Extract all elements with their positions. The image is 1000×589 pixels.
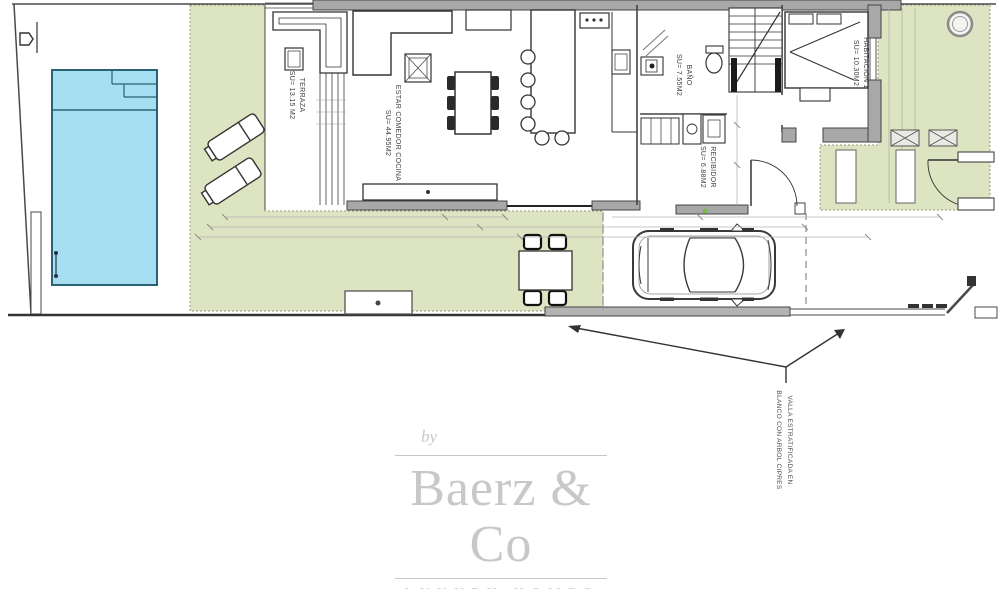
swimming-pool: [52, 70, 157, 285]
living-room-furniture: [353, 10, 511, 200]
fence-annotation-text: VALLA ESTRATIFICADA EN BLANCO CON ARBOL …: [773, 390, 795, 489]
brand-rule-middle: [395, 578, 607, 579]
kitchen: [521, 10, 637, 145]
front-door: [751, 160, 797, 206]
brand-watermark: by Baerz & Co LUXURY HOMES: [395, 427, 607, 589]
room-label-terraza: TERRAZA SU= 13.15 M2: [286, 71, 306, 120]
room-label-estar-comedor-cocina: ESTAR COMEDOR COCINA SU= 44.95M2: [382, 85, 402, 182]
fence-annotation-arrows: [568, 325, 845, 383]
brand-prefix: by: [395, 427, 607, 447]
laundry-closet: [641, 114, 725, 144]
terrace-planter: [273, 12, 347, 73]
car: [633, 224, 775, 306]
brand-rule-top: [395, 455, 607, 456]
room-label-habitacion-1: HABITACIÓN 1 SU= 10.30M2: [850, 37, 870, 89]
water-tap-icon: [20, 22, 37, 53]
room-label-recibidor: RECIBIDOR SU= 6.88M2: [697, 146, 717, 188]
floor-plan: TERRAZA SU= 13.15 M2 ESTAR COMEDOR COCIN…: [0, 0, 1000, 589]
garden-gate: [345, 291, 412, 314]
brand-name: Baerz & Co: [395, 461, 607, 573]
room-label-bano: BAÑO SU= 7.55M2: [673, 54, 693, 96]
stairs: [729, 8, 782, 92]
